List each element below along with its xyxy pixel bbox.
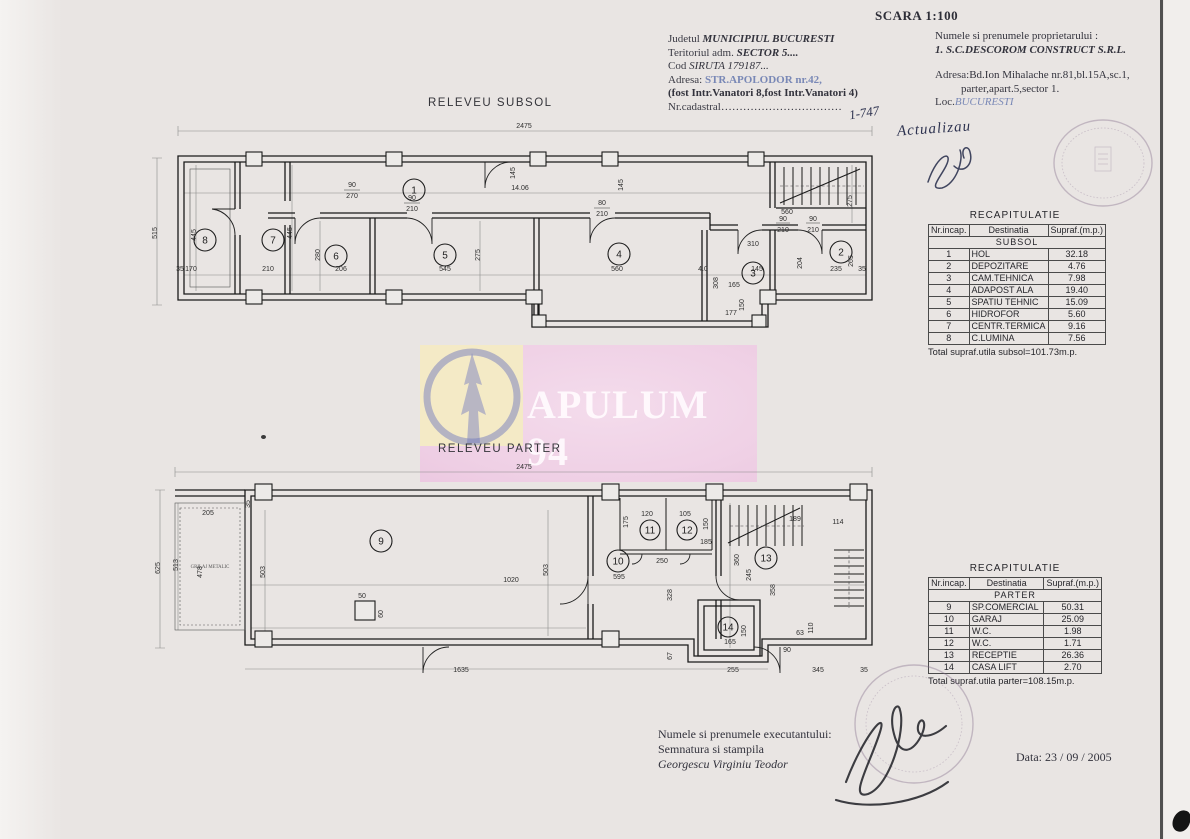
room-number-14: 14	[722, 623, 734, 634]
proprietar-adresa-value: Bd.Ion Mihalache nr.81,bl.15A,sc.1,	[969, 69, 1129, 81]
col-header: Destinatia	[969, 578, 1044, 590]
cell-supraf: 5.60	[1048, 309, 1106, 321]
cod-siruta-line: Cod SIRUTA 179187...	[668, 60, 933, 74]
room-number-7: 7	[270, 236, 276, 247]
scanned-cadastral-document: { "page": {"scale": "SCARA 1:100", "date…	[0, 0, 1190, 839]
svg-text:545: 545	[439, 266, 451, 273]
scan-edge-line	[1160, 0, 1163, 839]
svg-text:358: 358	[770, 584, 777, 596]
svg-text:515: 515	[152, 227, 159, 239]
room-number-4: 4	[616, 250, 622, 261]
parter-annex-grilaj: GRILAJ METALIC	[175, 503, 245, 630]
room-number-9: 9	[378, 537, 384, 548]
cell-supraf: 19.40	[1048, 285, 1106, 297]
recap-subsol-total: Total supraf.utila subsol=101.73m.p.	[928, 347, 1102, 357]
svg-text:206: 206	[335, 266, 347, 273]
room-number-2: 2	[838, 248, 844, 259]
svg-text:2475: 2475	[516, 464, 532, 471]
svg-text:478: 478	[197, 566, 204, 578]
svg-text:308: 308	[713, 277, 720, 289]
svg-text:503: 503	[543, 564, 550, 576]
svg-text:90: 90	[779, 216, 787, 223]
svg-text:14.06: 14.06	[511, 185, 529, 192]
svg-text:250: 250	[656, 558, 668, 565]
room-number-13: 13	[760, 554, 772, 565]
svg-text:4.0: 4.0	[698, 266, 708, 273]
scale-label: SCARA 1:100	[875, 8, 958, 24]
small-signature	[920, 140, 1000, 202]
room-number-12: 12	[681, 526, 693, 537]
cell-dest: C.LUMINA	[969, 333, 1048, 345]
svg-text:145: 145	[618, 179, 625, 191]
cell-dest: SP.COMERCIAL	[969, 602, 1044, 614]
nr-cadastral-label: Nr.cadastral	[668, 101, 721, 113]
judet-label: Judetul	[668, 33, 700, 45]
cell-nr: 11	[929, 626, 970, 638]
svg-text:150: 150	[739, 299, 746, 311]
cell-nr: 7	[929, 321, 970, 333]
svg-text:210: 210	[807, 227, 819, 234]
cell-dest: CAM.TEHNICA	[969, 273, 1048, 285]
svg-text:165: 165	[724, 639, 736, 646]
svg-text:105: 105	[679, 511, 691, 518]
svg-text:175: 175	[623, 516, 630, 528]
room-number-6: 6	[333, 252, 339, 263]
cell-nr: 3	[929, 273, 970, 285]
col-header: Supraf.(m.p.)	[1044, 578, 1102, 590]
parter-walls	[175, 490, 872, 662]
svg-text:189: 189	[789, 516, 801, 523]
executant-signature	[828, 682, 968, 807]
recap-parter-title: RECAPITULATIE	[928, 563, 1102, 574]
executant-name: Georgescu Virginiu Teodor	[658, 757, 832, 772]
proprietar-name: 1. S.C.DESCOROM CONSTRUCT S.R.L.	[935, 44, 1185, 58]
svg-text:210: 210	[596, 211, 608, 218]
svg-text:204: 204	[797, 257, 804, 269]
cell-nr: 4	[929, 285, 970, 297]
cell-supraf: 32.18	[1048, 249, 1106, 261]
cell-supraf: 25.09	[1044, 614, 1102, 626]
cell-dest: HOL	[969, 249, 1048, 261]
localitate-line: Loc.BUCURESTI	[935, 96, 1185, 110]
svg-text:235: 235	[830, 266, 842, 273]
cell-dest: W.C.	[969, 638, 1044, 650]
svg-text:35: 35	[858, 266, 866, 273]
cell-supraf: 7.98	[1048, 273, 1106, 285]
date-label: Data: 23 / 09 / 2005	[1016, 750, 1112, 765]
judet-value: MUNICIPIUL BUCURESTI	[703, 33, 835, 45]
recap-table-subsol: RECAPITULATIE Nr.incap.DestinatiaSupraf.…	[928, 210, 1102, 357]
nr-cadastral-dots: ……………………………	[721, 101, 842, 113]
teritoriul-value: SECTOR 5....	[737, 47, 799, 59]
apulum-logo-icon	[420, 345, 523, 446]
svg-text:275: 275	[847, 195, 854, 207]
svg-text:625: 625	[155, 562, 162, 574]
cell-supraf: 15.09	[1048, 297, 1106, 309]
svg-text:265: 265	[848, 255, 855, 267]
localitate-label: Loc.	[935, 96, 955, 108]
svg-text:503: 503	[260, 566, 267, 578]
svg-text:210: 210	[777, 227, 789, 234]
col-header: Nr.incap.	[929, 578, 970, 590]
official-round-stamp-top	[1048, 116, 1158, 216]
recap-subsol-title: RECAPITULATIE	[928, 210, 1102, 221]
cell-supraf: 26.36	[1044, 650, 1102, 662]
cell-dest: SPATIU TEHNIC	[969, 297, 1048, 309]
svg-text:35: 35	[245, 500, 252, 508]
parter-door-arcs	[423, 554, 780, 673]
teritoriul-label: Teritoriul adm.	[668, 47, 734, 59]
col-header: Destinatia	[969, 225, 1048, 237]
svg-text:185: 185	[700, 539, 712, 546]
scan-speck	[261, 435, 266, 439]
cell-nr: 9	[929, 602, 970, 614]
room-number-10: 10	[612, 557, 624, 568]
svg-text:245: 245	[746, 569, 753, 581]
cell-supraf: 2.70	[1044, 662, 1102, 674]
proprietar-adresa-line: Adresa:Bd.Ion Mihalache nr.81,bl.15A,sc.…	[935, 69, 1185, 83]
table-row: 5SPATIU TEHNIC15.09	[929, 297, 1106, 309]
room-number-8: 8	[202, 236, 208, 247]
svg-text:177: 177	[725, 310, 737, 317]
table-row: 10GARAJ25.09	[929, 614, 1102, 626]
cod-label: Cod	[668, 60, 686, 72]
semnatura-caption: Semnatura si stampila	[658, 742, 832, 757]
svg-text:210: 210	[406, 206, 418, 213]
svg-text:165: 165	[728, 282, 740, 289]
svg-text:360: 360	[734, 554, 741, 566]
cell-dest: DEPOZITARE	[969, 261, 1048, 273]
cell-supraf: 4.76	[1048, 261, 1106, 273]
svg-text:205: 205	[202, 510, 214, 517]
svg-text:595: 595	[613, 574, 625, 581]
svg-text:150: 150	[741, 625, 748, 637]
executant-caption: Numele si prenumele executantului:	[658, 727, 832, 742]
svg-text:114: 114	[832, 519, 843, 526]
svg-text:90: 90	[348, 182, 356, 189]
handwritten-update-note: Actualizau	[896, 118, 971, 140]
proprietar-caption: Numele si prenumele proprietarului :	[935, 30, 1185, 44]
header-left-block: Judetul MUNICIPIUL BUCURESTI Teritoriul …	[668, 33, 933, 114]
cell-supraf: 9.16	[1048, 321, 1106, 333]
cell-supraf: 1.71	[1044, 638, 1102, 650]
svg-text:310: 310	[747, 241, 759, 248]
svg-text:1635: 1635	[453, 667, 469, 674]
table-row: 3CAM.TEHNICA7.98	[929, 273, 1106, 285]
svg-text:50: 50	[358, 593, 366, 600]
cell-dest: HIDROFOR	[969, 309, 1048, 321]
subsol-floor-plan: 1 2 3 4 5 6 7 8 2475 515 445 445 90 270 …	[150, 113, 890, 358]
svg-text:275: 275	[475, 249, 482, 261]
section-header: PARTER	[929, 590, 1102, 602]
svg-text:328: 328	[667, 589, 674, 601]
svg-text:255: 255	[727, 667, 739, 674]
cell-nr: 5	[929, 297, 970, 309]
room-number-11: 11	[645, 526, 656, 537]
executant-block: Numele si prenumele executantului: Semna…	[658, 727, 832, 772]
table-row: 2DEPOZITARE4.76	[929, 261, 1106, 273]
svg-text:513: 513	[173, 559, 180, 571]
svg-text:560: 560	[781, 209, 793, 216]
cell-dest: ADAPOST ALA	[969, 285, 1048, 297]
scan-left-margin	[0, 0, 62, 839]
cell-dest: W.C.	[969, 626, 1044, 638]
col-header: Supraf.(m.p.)	[1048, 225, 1106, 237]
cell-nr: 1	[929, 249, 970, 261]
svg-text:2475: 2475	[516, 123, 532, 130]
subsol-door-arcs	[212, 162, 822, 254]
svg-text:1020: 1020	[503, 577, 519, 584]
cell-supraf: 50.31	[1044, 602, 1102, 614]
table-row: 9SP.COMERCIAL50.31	[929, 602, 1102, 614]
parter-plan-title: RELEVEU PARTER	[438, 443, 561, 455]
svg-text:445: 445	[287, 227, 294, 239]
cell-supraf: 1.98	[1044, 626, 1102, 638]
svg-text:145: 145	[751, 266, 763, 273]
svg-text:90: 90	[809, 216, 817, 223]
cell-nr: 10	[929, 614, 970, 626]
table-row: 7CENTR.TERMICA9.16	[929, 321, 1106, 333]
svg-text:67: 67	[667, 652, 674, 660]
svg-text:90: 90	[783, 647, 791, 654]
svg-text:560: 560	[611, 266, 623, 273]
fost-adresa-line: (fost Intr.Vanatori 8,fost Intr.Vanatori…	[668, 87, 933, 101]
cell-nr: 8	[929, 333, 970, 345]
svg-text:60: 60	[378, 610, 385, 618]
svg-text:345: 345	[812, 667, 824, 674]
teritoriul-line: Teritoriul adm. SECTOR 5....	[668, 47, 933, 61]
svg-text:210: 210	[262, 266, 274, 273]
svg-text:280: 280	[315, 249, 322, 261]
recap-subsol-grid: Nr.incap.DestinatiaSupraf.(m.p.) SUBSOL …	[928, 224, 1106, 345]
scan-right-margin	[1164, 0, 1190, 839]
cell-nr: 6	[929, 309, 970, 321]
adresa-line: Adresa: STR.APOLODOR nr.42,	[668, 74, 933, 88]
cell-dest: CENTR.TERMICA	[969, 321, 1048, 333]
cod-value: SIRUTA 179187...	[689, 60, 769, 72]
proprietar-adresa-line2: parter,apart.5,sector 1.	[935, 83, 1185, 97]
cell-nr: 12	[929, 638, 970, 650]
svg-text:90: 90	[408, 195, 416, 202]
room-number-5: 5	[442, 251, 448, 262]
judet-line: Judetul MUNICIPIUL BUCURESTI	[668, 33, 933, 47]
table-row: 8C.LUMINA7.56	[929, 333, 1106, 345]
header-right-block: Numele si prenumele proprietarului : 1. …	[935, 30, 1185, 110]
table-row: 12W.C.1.71	[929, 638, 1102, 650]
table-row: 6HIDROFOR5.60	[929, 309, 1106, 321]
svg-text:63: 63	[796, 630, 804, 637]
section-header: SUBSOL	[929, 237, 1106, 249]
svg-text:445: 445	[191, 229, 198, 241]
spacer	[935, 57, 1185, 69]
nr-cadastral-line: Nr.cadastral……………………………	[668, 101, 933, 115]
svg-text:120: 120	[641, 511, 653, 518]
localitate-value: BUCURESTI	[955, 96, 1014, 108]
svg-text:170: 170	[185, 266, 197, 273]
svg-text:80: 80	[598, 200, 606, 207]
cell-nr: 2	[929, 261, 970, 273]
proprietar-adresa-label: Adresa:	[935, 69, 969, 81]
col-header: Nr.incap.	[929, 225, 970, 237]
adresa-label: Adresa:	[668, 74, 702, 86]
cell-dest: GARAJ	[969, 614, 1044, 626]
table-row: 1HOL32.18	[929, 249, 1106, 261]
svg-text:145: 145	[510, 167, 517, 179]
parter-floor-plan: GRILAJ METALIC 9 10 11 12 13 14 2475 625…	[150, 458, 890, 713]
svg-text:270: 270	[346, 193, 358, 200]
adresa-value: STR.APOLODOR nr.42,	[705, 74, 822, 86]
table-row: 4ADAPOST ALA19.40	[929, 285, 1106, 297]
table-row: 11W.C.1.98	[929, 626, 1102, 638]
svg-text:150: 150	[703, 518, 710, 530]
svg-text:35: 35	[176, 266, 184, 273]
subsol-plan-title: RELEVEU SUBSOL	[428, 97, 553, 109]
cell-supraf: 7.56	[1048, 333, 1106, 345]
svg-text:110: 110	[808, 622, 815, 633]
